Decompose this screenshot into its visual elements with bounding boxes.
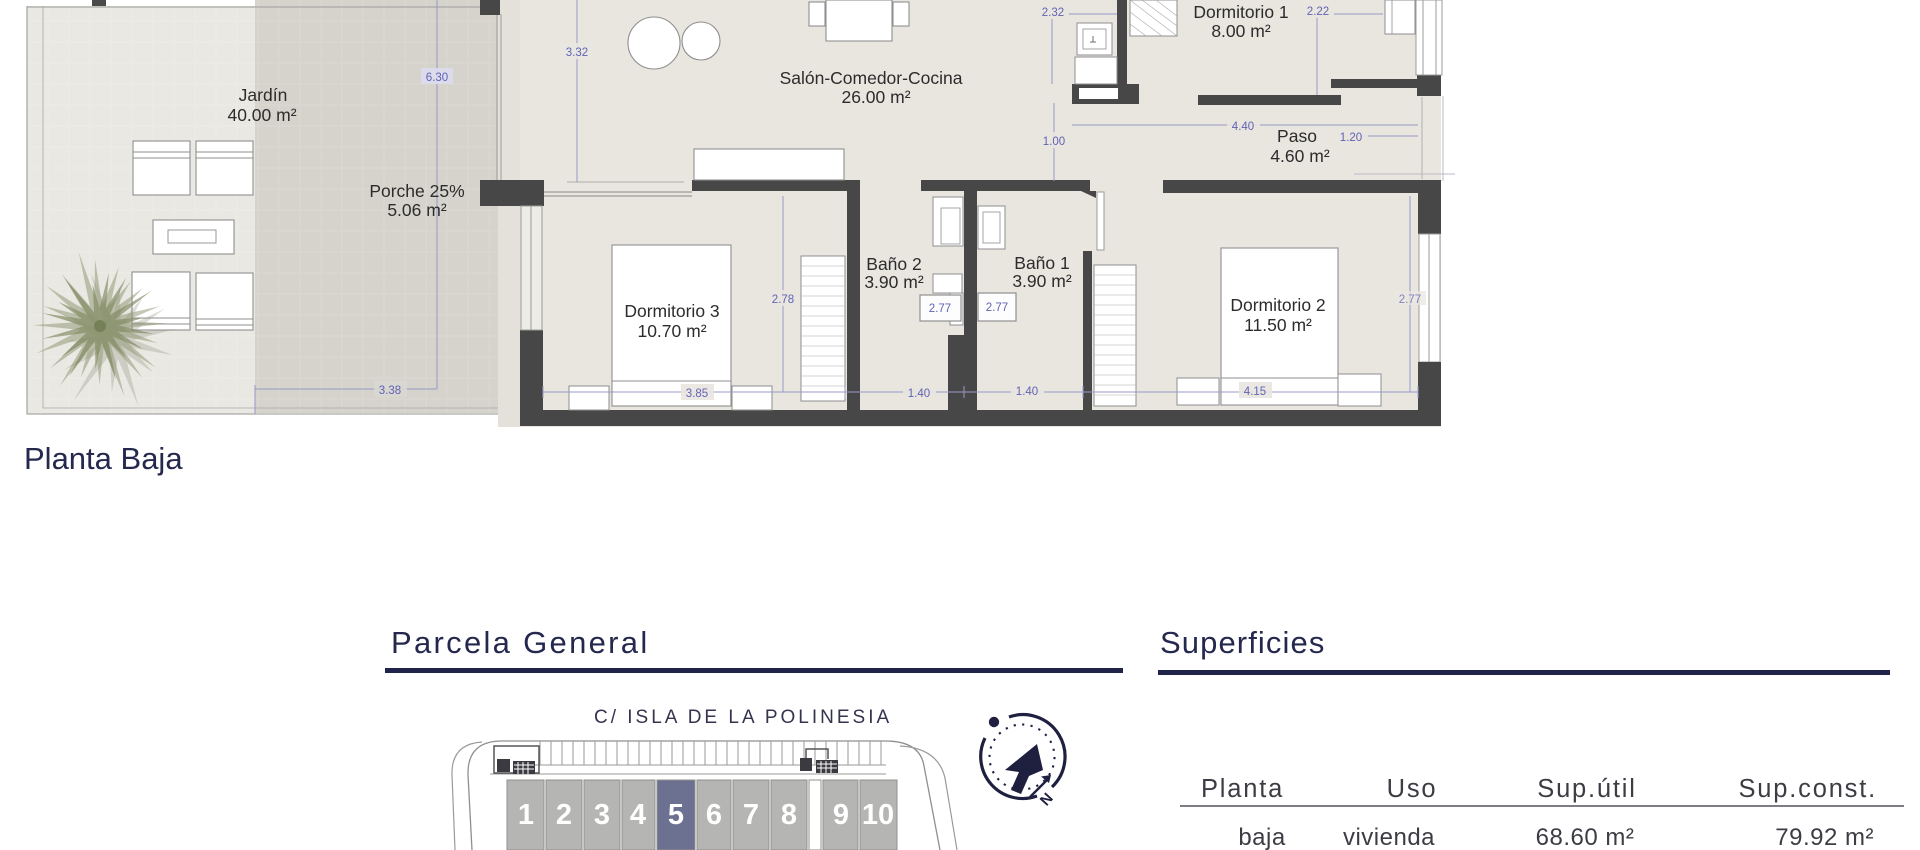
svg-text:6.30: 6.30 <box>426 72 448 84</box>
svg-text:baja: baja <box>1238 824 1286 850</box>
svg-text:Sup.útil: Sup.útil <box>1537 775 1636 803</box>
svg-text:1.40: 1.40 <box>908 388 930 400</box>
svg-text:3.32: 3.32 <box>566 47 588 59</box>
svg-text:2.78: 2.78 <box>772 294 794 306</box>
svg-text:8: 8 <box>781 799 797 831</box>
svg-text:6: 6 <box>706 799 722 831</box>
svg-text:11.50 m²: 11.50 m² <box>1244 315 1312 335</box>
svg-text:Planta: Planta <box>1201 775 1284 803</box>
svg-text:5: 5 <box>668 799 684 831</box>
svg-text:8.00 m²: 8.00 m² <box>1211 21 1270 41</box>
svg-text:3.90 m²: 3.90 m² <box>864 272 923 292</box>
svg-text:Dormitorio 2: Dormitorio 2 <box>1230 295 1325 315</box>
svg-text:4.60 m²: 4.60 m² <box>1270 146 1329 166</box>
svg-text:10: 10 <box>862 799 894 831</box>
svg-text:Porche 25%: Porche 25% <box>369 181 464 201</box>
svg-text:1.00: 1.00 <box>1043 136 1065 148</box>
svg-text:C/ ISLA DE LA POLINESIA: C/ ISLA DE LA POLINESIA <box>594 707 892 728</box>
svg-text:Parcela General: Parcela General <box>391 625 650 660</box>
svg-text:68.60 m²: 68.60 m² <box>1536 824 1635 850</box>
svg-text:3.38: 3.38 <box>379 385 401 397</box>
svg-text:3.90 m²: 3.90 m² <box>1012 271 1071 291</box>
svg-text:1: 1 <box>518 799 534 831</box>
svg-text:Baño 1: Baño 1 <box>1014 253 1069 273</box>
svg-text:Salón-Comedor-Cocina: Salón-Comedor-Cocina <box>780 68 963 88</box>
svg-text:2.32: 2.32 <box>1042 7 1064 19</box>
svg-text:4: 4 <box>630 799 646 831</box>
svg-text:4.40: 4.40 <box>1232 121 1254 133</box>
svg-text:2.77: 2.77 <box>929 303 951 315</box>
svg-text:Dormitorio 3: Dormitorio 3 <box>624 301 719 321</box>
svg-text:Baño 2: Baño 2 <box>866 254 921 274</box>
svg-text:26.00 m²: 26.00 m² <box>841 87 910 107</box>
svg-text:vivienda: vivienda <box>1343 824 1435 850</box>
svg-text:3: 3 <box>594 799 610 831</box>
svg-text:1.40: 1.40 <box>1016 386 1038 398</box>
svg-text:2.77: 2.77 <box>1399 294 1421 306</box>
svg-text:10.70 m²: 10.70 m² <box>637 321 706 341</box>
svg-text:3.85: 3.85 <box>686 388 708 400</box>
svg-text:5.06 m²: 5.06 m² <box>387 200 446 220</box>
svg-text:2.22: 2.22 <box>1307 6 1329 18</box>
svg-text:Planta Baja: Planta Baja <box>24 441 183 476</box>
svg-text:Superficies: Superficies <box>1160 625 1325 660</box>
svg-text:79.92 m²: 79.92 m² <box>1775 824 1874 850</box>
svg-text:Sup.const.: Sup.const. <box>1739 775 1878 803</box>
svg-text:Paso: Paso <box>1277 126 1317 146</box>
svg-text:40.00 m²: 40.00 m² <box>227 105 296 125</box>
svg-text:9: 9 <box>833 799 849 831</box>
svg-text:1.20: 1.20 <box>1340 132 1362 144</box>
svg-text:Dormitorio 1: Dormitorio 1 <box>1193 2 1288 22</box>
svg-text:7: 7 <box>743 799 759 831</box>
svg-text:4.15: 4.15 <box>1244 386 1266 398</box>
svg-text:Uso: Uso <box>1387 775 1438 803</box>
svg-text:2: 2 <box>556 799 572 831</box>
svg-text:2.77: 2.77 <box>986 302 1008 314</box>
svg-text:Jardín: Jardín <box>239 85 288 105</box>
